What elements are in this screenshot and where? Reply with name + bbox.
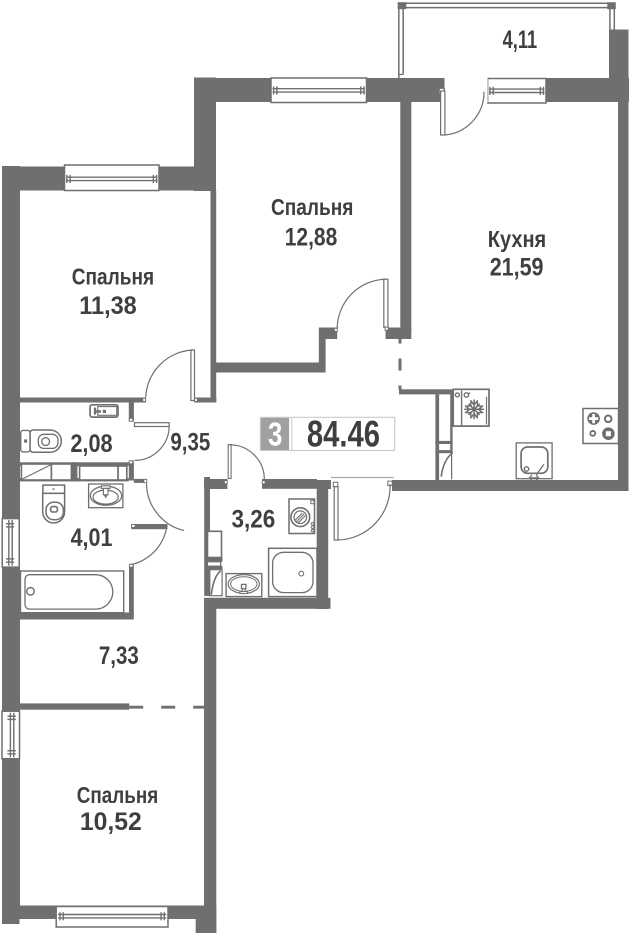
svg-text:11,38: 11,38: [79, 292, 136, 320]
svg-text:Спальня: Спальня: [77, 783, 158, 808]
svg-text:4,01: 4,01: [71, 523, 113, 551]
svg-text:9,35: 9,35: [170, 428, 210, 456]
svg-text:4,11: 4,11: [503, 25, 538, 54]
svg-text:3,26: 3,26: [232, 506, 276, 534]
svg-text:84.46: 84.46: [307, 414, 380, 455]
svg-text:2,08: 2,08: [70, 430, 112, 458]
svg-text:12,88: 12,88: [285, 223, 338, 251]
svg-text:Спальня: Спальня: [72, 265, 154, 290]
svg-text:10,52: 10,52: [80, 808, 142, 836]
svg-text:Кухня: Кухня: [488, 225, 546, 252]
svg-text:7,33: 7,33: [99, 641, 139, 669]
svg-text:Спальня: Спальня: [271, 196, 353, 221]
svg-text:21,59: 21,59: [490, 253, 544, 281]
svg-text:3: 3: [268, 416, 282, 453]
